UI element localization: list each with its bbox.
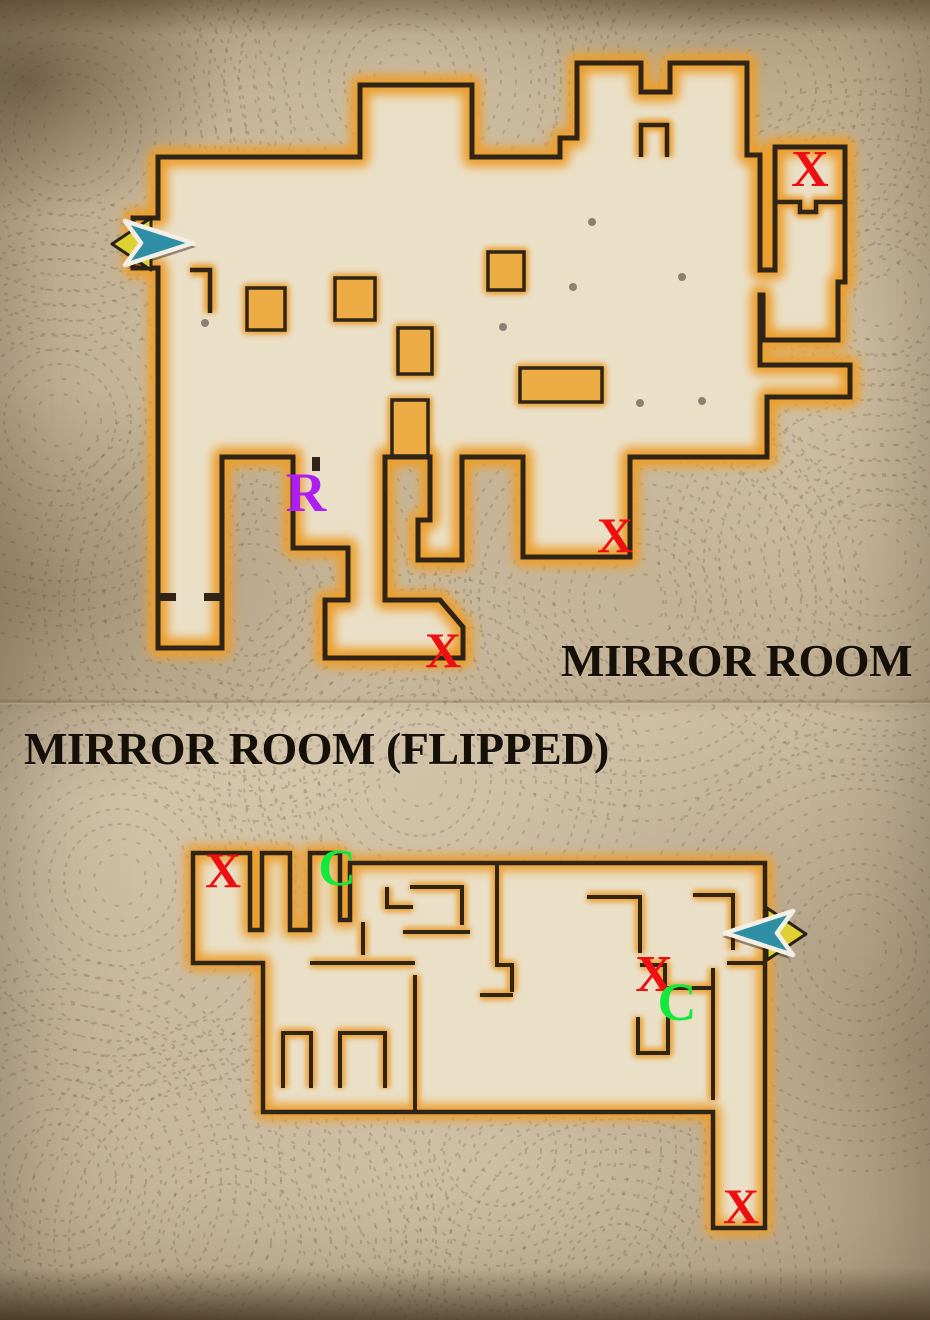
pillar (247, 288, 285, 330)
map-title-bottom: MIRROR ROOM (FLIPPED) (24, 722, 609, 775)
fingerprint-ridge (34, 1154, 86, 1206)
fingerprint-ridge (839, 519, 921, 601)
fingerprint-ridge (789, 879, 930, 1021)
fingerprint-ridge (0, 989, 251, 1320)
fingerprint-ridge (0, 44, 156, 216)
pillar (488, 252, 524, 290)
fingerprint-ridge (594, 1254, 646, 1306)
fingerprint-ridge (29, 89, 111, 171)
fingerprint-ridge (79, 839, 161, 921)
fingerprint-ridge (14, 74, 126, 186)
fingerprint-ridge (0, 1109, 131, 1251)
fingerprint-ridge (809, 489, 930, 631)
fingerprint-ridge (84, 1094, 376, 1320)
pillar (398, 328, 432, 374)
fingerprint-ridge (64, 824, 176, 936)
fingerprint-ridge (519, 1179, 721, 1320)
fingerprint-ridge (824, 504, 930, 616)
pillar (520, 368, 602, 402)
fingerprint-ridge (804, 894, 916, 1006)
fingerprint-ridge (174, 1184, 286, 1296)
fingerprint-ridge (614, 574, 666, 626)
fingerprint-ridge (49, 809, 191, 951)
fingerprint-ridge (779, 459, 930, 661)
fingerprint-ridge (4, 1124, 116, 1236)
mirror-room-map (133, 63, 850, 658)
fingerprint-ridge (334, 694, 506, 866)
fingerprint-ridge (44, 104, 96, 156)
fingerprint-ridge (19, 1139, 101, 1221)
fingerprint-ridge (819, 909, 901, 991)
fingerprint-ridge (0, 1049, 191, 1311)
fingerprint-ridge (854, 274, 906, 326)
fingerprint-ridge (0, 59, 141, 201)
fingerprint-ridge (474, 1124, 526, 1176)
pillar (335, 278, 375, 320)
fingerprint-ridge (4, 364, 116, 476)
fingerprint-ridge (34, 394, 86, 446)
fingerprint-ridge (599, 559, 681, 641)
pillar (392, 400, 428, 456)
fingerprint-ridge (0, 1019, 221, 1320)
fingerprint-ridge (774, 864, 930, 1036)
fingerprint-ridge (0, 319, 161, 521)
annotated-map-screenshot: MIRROR ROOM MIRROR ROOM (FLIPPED) XRXXXC… (0, 0, 930, 1320)
fingerprint-ridge (549, 1209, 691, 1320)
fingerprint-ridge (834, 924, 886, 976)
screenshot-seam (0, 699, 930, 705)
fingerprint-ridge (579, 1239, 661, 1320)
fingerprint-ridge (34, 794, 206, 966)
fingerprint-ridge (459, 1109, 541, 1191)
fingerprint-ridge (854, 534, 906, 586)
mirror-room-flipped-map (193, 853, 765, 1228)
fingerprint-ridge (94, 854, 146, 906)
fingerprint-ridge (0, 959, 281, 1320)
fingerprint-ridge (0, 349, 131, 491)
map-title-top: MIRROR ROOM (561, 634, 912, 687)
fingerprint-ridge (0, 1034, 206, 1320)
fingerprint-ridge (159, 1169, 301, 1311)
